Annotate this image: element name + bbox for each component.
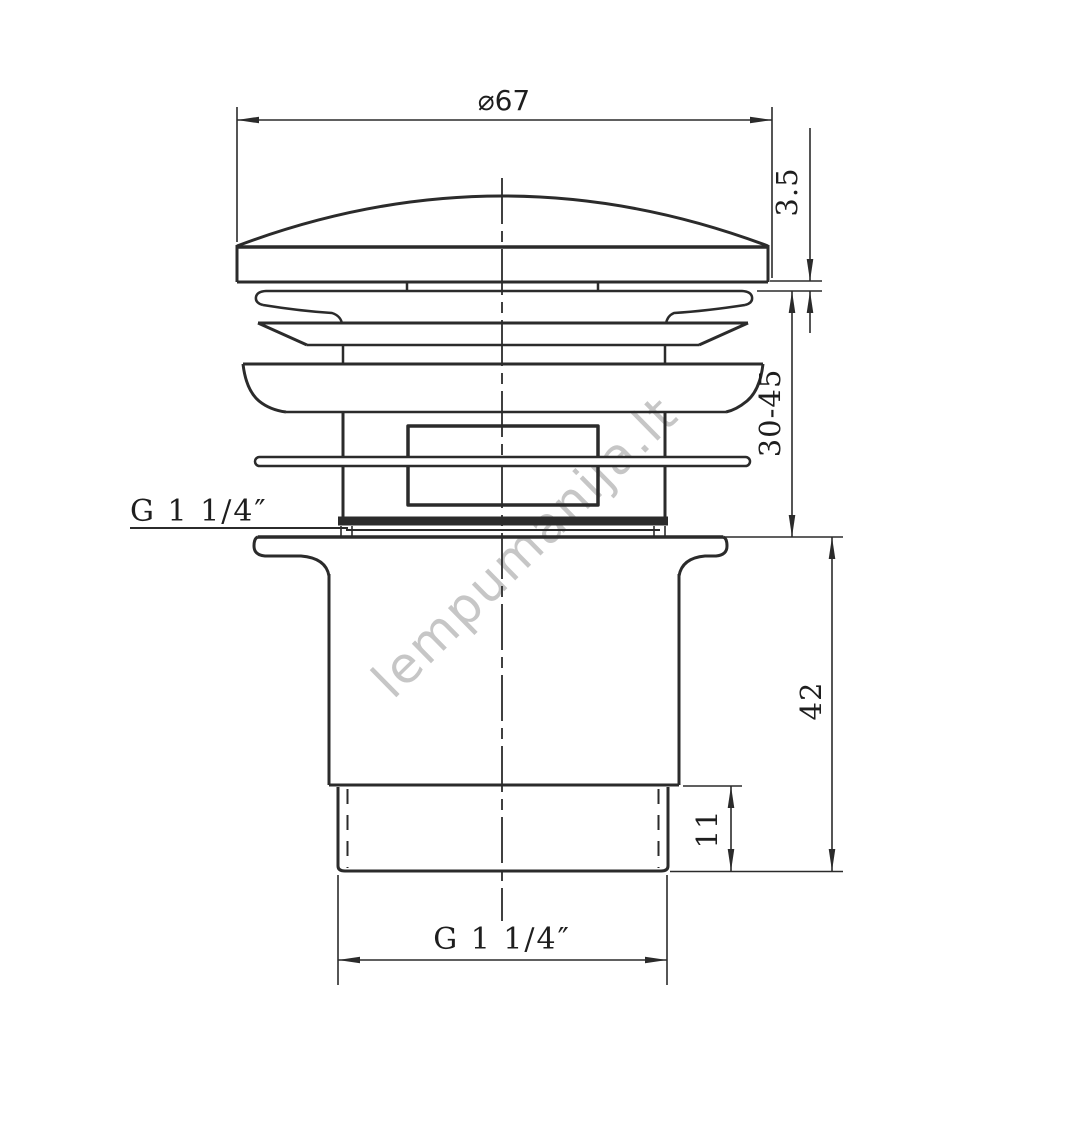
dim11-arrow-down	[728, 849, 735, 871]
seal-washer-bottom-right	[666, 305, 745, 324]
tail-outer-right	[661, 787, 668, 871]
dim3045-arrow-down	[789, 515, 796, 537]
dim42-text: 42	[794, 682, 828, 721]
dim67-text: ⌀67	[478, 84, 531, 117]
dimG-arrow-right	[645, 957, 667, 964]
dim67-arrow-right	[750, 117, 772, 124]
dim3045-arrow-up	[789, 291, 796, 313]
dim3045-text: 30-45	[753, 369, 787, 458]
flange-left-profile	[254, 537, 329, 576]
dim35-arrow-up	[807, 291, 814, 313]
watermark: lempumanija.lt	[361, 385, 690, 709]
dim42-arrow-down	[829, 849, 836, 871]
flange-right-profile	[679, 537, 727, 576]
threaded-tail	[338, 787, 843, 872]
seal-washer-top	[256, 291, 752, 305]
dim11-arrow-up	[728, 786, 735, 808]
dim11-text: 11	[690, 810, 724, 849]
dim67-arrow-left	[237, 117, 259, 124]
dim-cap-lip: 3.5	[757, 128, 822, 333]
bowl-left-curve	[243, 364, 286, 412]
dim-clamping-range: 30-45	[753, 291, 795, 537]
dim-diameter-top: ⌀67	[237, 84, 772, 278]
overflow-bowl	[243, 364, 763, 412]
seal-washer	[256, 291, 752, 324]
dim42-arrow-up	[829, 537, 836, 559]
clamp-plate-slant-right	[699, 323, 748, 345]
thread-joint-band	[338, 517, 668, 526]
label-thread-side: G 1 1/4″	[130, 494, 348, 529]
dimG-arrow-left	[338, 957, 360, 964]
tail-outer-left	[338, 787, 345, 871]
dimG-bottom-text: G 1 1/4″	[433, 922, 571, 957]
seal-washer-bottom-left	[263, 305, 342, 324]
clamp-plate	[258, 323, 748, 364]
dim35-arrow-down	[807, 259, 814, 281]
thread-side-text: G 1 1/4″	[130, 494, 268, 529]
pivot-rod	[255, 457, 750, 466]
dim-housing-height: 42	[794, 537, 835, 871]
watermark-text: lempumanija.lt	[361, 385, 690, 709]
clamp-plate-slant-left	[258, 323, 307, 345]
dim-thread-length: 11	[690, 786, 734, 871]
drawing-svg: lempumanija.lt	[0, 0, 1074, 1126]
dim35-text: 3.5	[770, 167, 804, 216]
technical-drawing-page: lempumanija.lt	[0, 0, 1074, 1126]
